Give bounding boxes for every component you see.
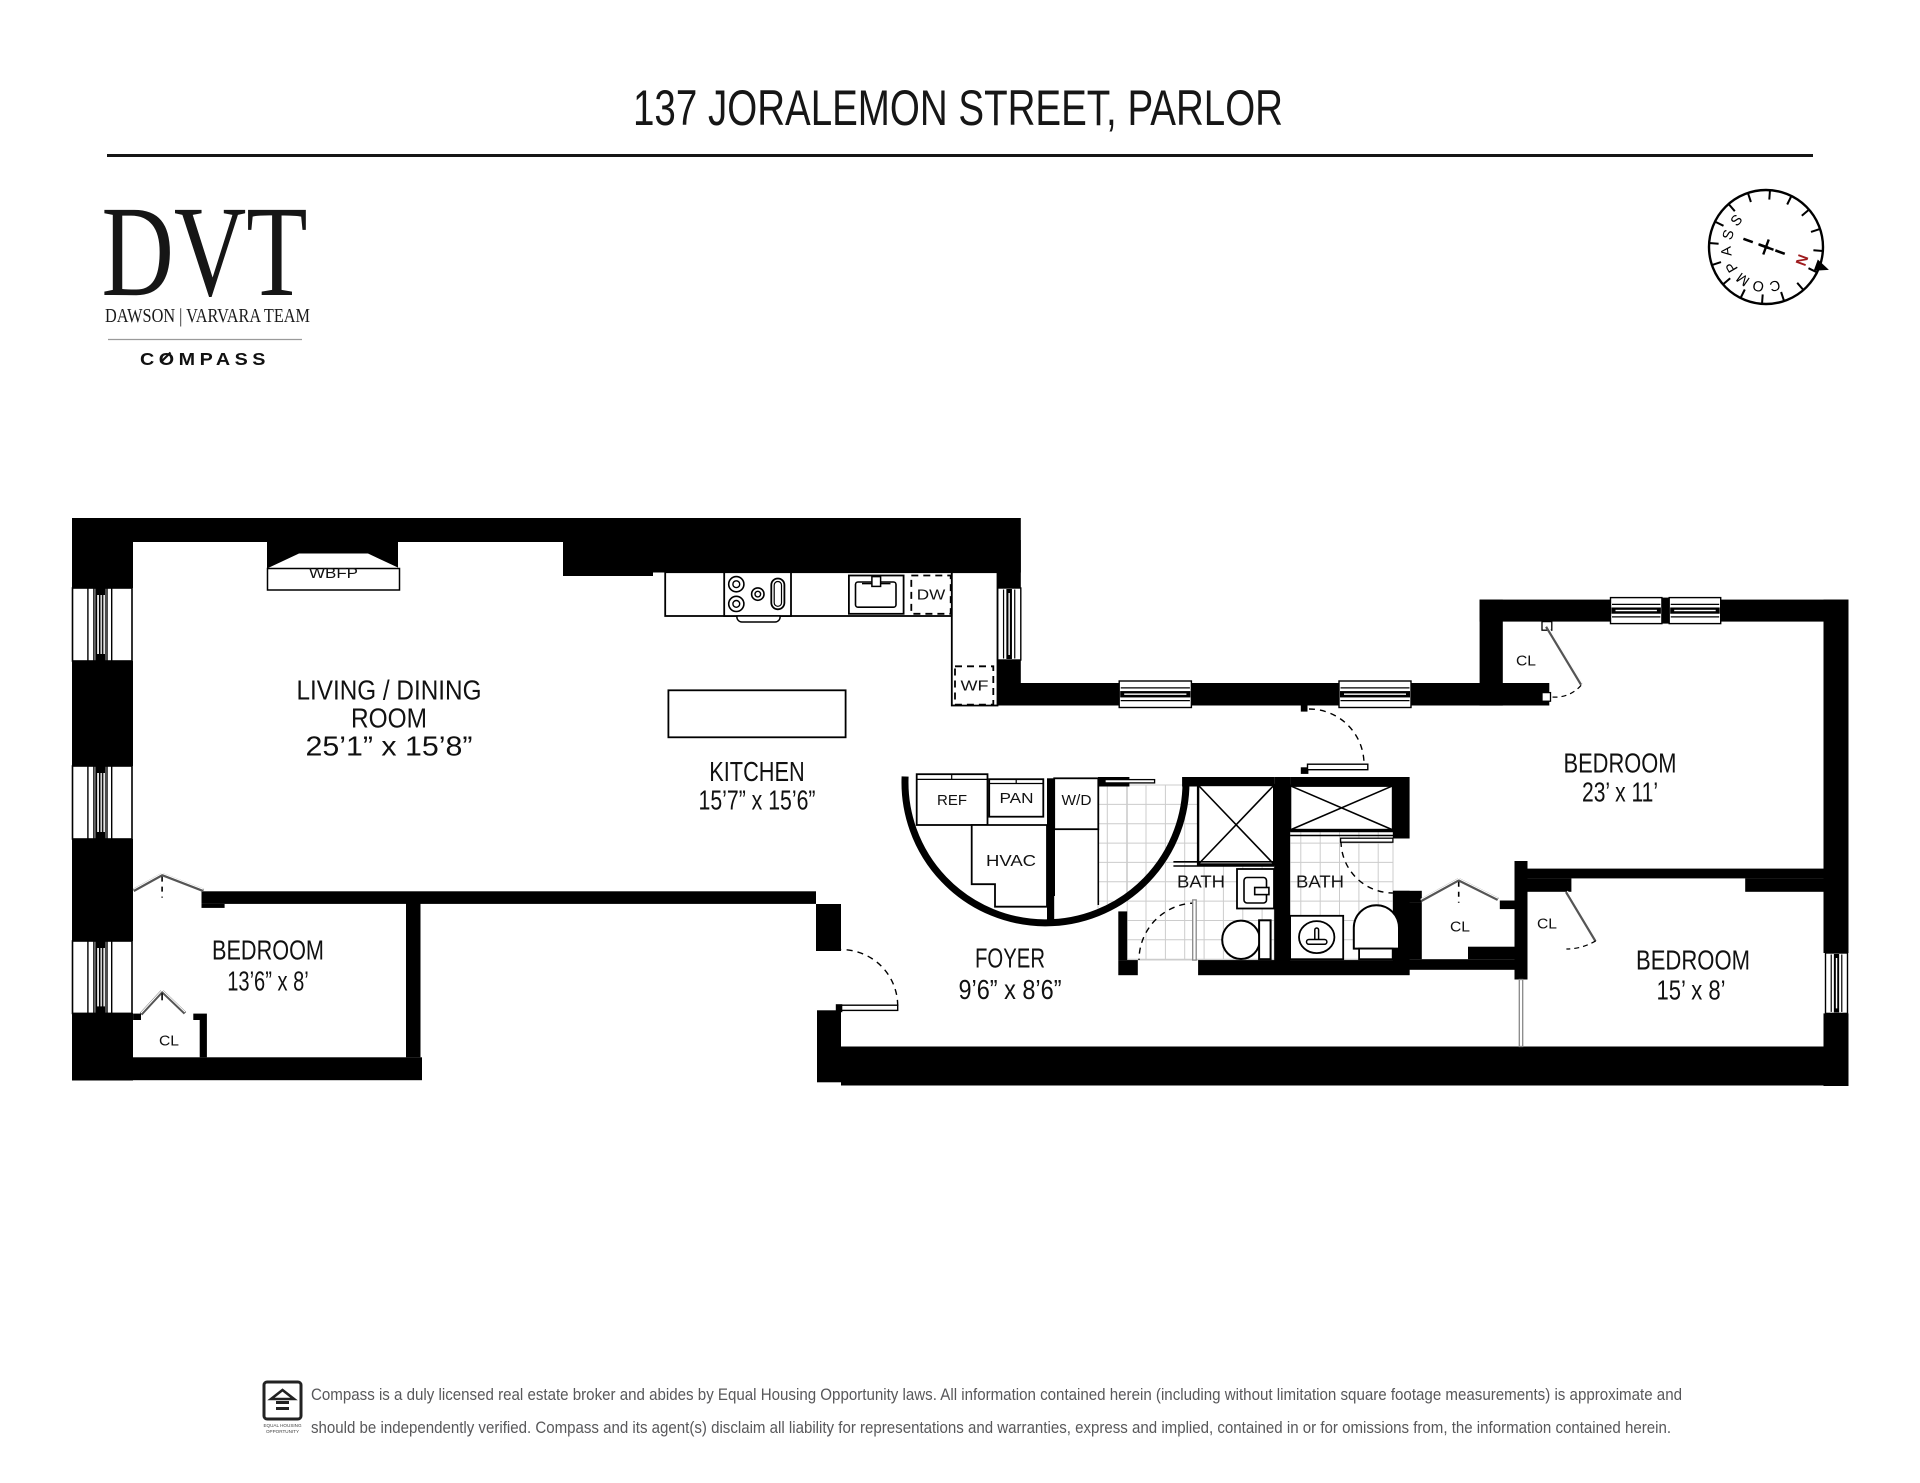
svg-text:CL: CL [1516,653,1536,670]
svg-text:A: A [1719,245,1736,257]
svg-text:15’7” x 15’6”: 15’7” x 15’6” [699,785,816,816]
svg-text:S: S [1728,212,1746,230]
svg-text:WBFP: WBFP [309,565,358,582]
svg-text:PAN: PAN [1000,790,1034,807]
svg-text:LIVING / DINING: LIVING / DINING [297,675,482,706]
svg-text:137 JORALEMON STREET, PARLOR: 137 JORALEMON STREET, PARLOR [633,80,1283,136]
svg-text:9’6” x 8’6”: 9’6” x 8’6” [959,974,1062,1005]
svg-text:DAWSON | VARVARA TEAM: DAWSON | VARVARA TEAM [105,305,310,327]
svg-text:DW: DW [917,587,946,604]
svg-text:OPPORTUNITY: OPPORTUNITY [266,1429,299,1434]
svg-text:BEDROOM: BEDROOM [1636,945,1750,976]
svg-text:DVT: DVT [102,180,308,324]
svg-text:M: M [1734,269,1753,289]
svg-text:EQUAL HOUSING: EQUAL HOUSING [263,1423,302,1428]
svg-text:BEDROOM: BEDROOM [1564,748,1677,779]
svg-text:should be independently verifi: should be independently verified. Compas… [311,1418,1671,1437]
svg-text:W/D: W/D [1062,792,1092,809]
svg-text:HVAC: HVAC [986,853,1036,870]
svg-text:23’ x 11’: 23’ x 11’ [1582,777,1658,808]
svg-text:FOYER: FOYER [975,943,1045,974]
svg-text:25’1” x 15’8”: 25’1” x 15’8” [306,731,473,762]
svg-text:Compass is a duly licensed rea: Compass is a duly licensed real estate b… [311,1385,1682,1404]
svg-text:CL: CL [1537,916,1557,933]
svg-text:N: N [1791,252,1811,268]
svg-text:REF: REF [937,792,967,809]
svg-text:O: O [1751,276,1765,294]
svg-text:S: S [1720,228,1738,242]
svg-text:BEDROOM: BEDROOM [212,935,324,966]
svg-text:15’ x 8’: 15’ x 8’ [1657,975,1726,1006]
svg-text:COMPASS: COMPASS [140,349,270,369]
svg-text:WF: WF [961,678,989,695]
svg-text:KITCHEN: KITCHEN [709,756,805,787]
svg-text:CL: CL [1450,919,1470,936]
svg-text:BATH: BATH [1177,872,1225,892]
svg-text:BATH: BATH [1296,872,1344,892]
svg-text:C: C [1768,276,1782,294]
svg-text:ROOM: ROOM [351,703,427,734]
svg-text:P: P [1723,258,1742,274]
svg-text:CL: CL [159,1033,179,1050]
svg-text:13’6” x 8’: 13’6” x 8’ [227,966,309,997]
